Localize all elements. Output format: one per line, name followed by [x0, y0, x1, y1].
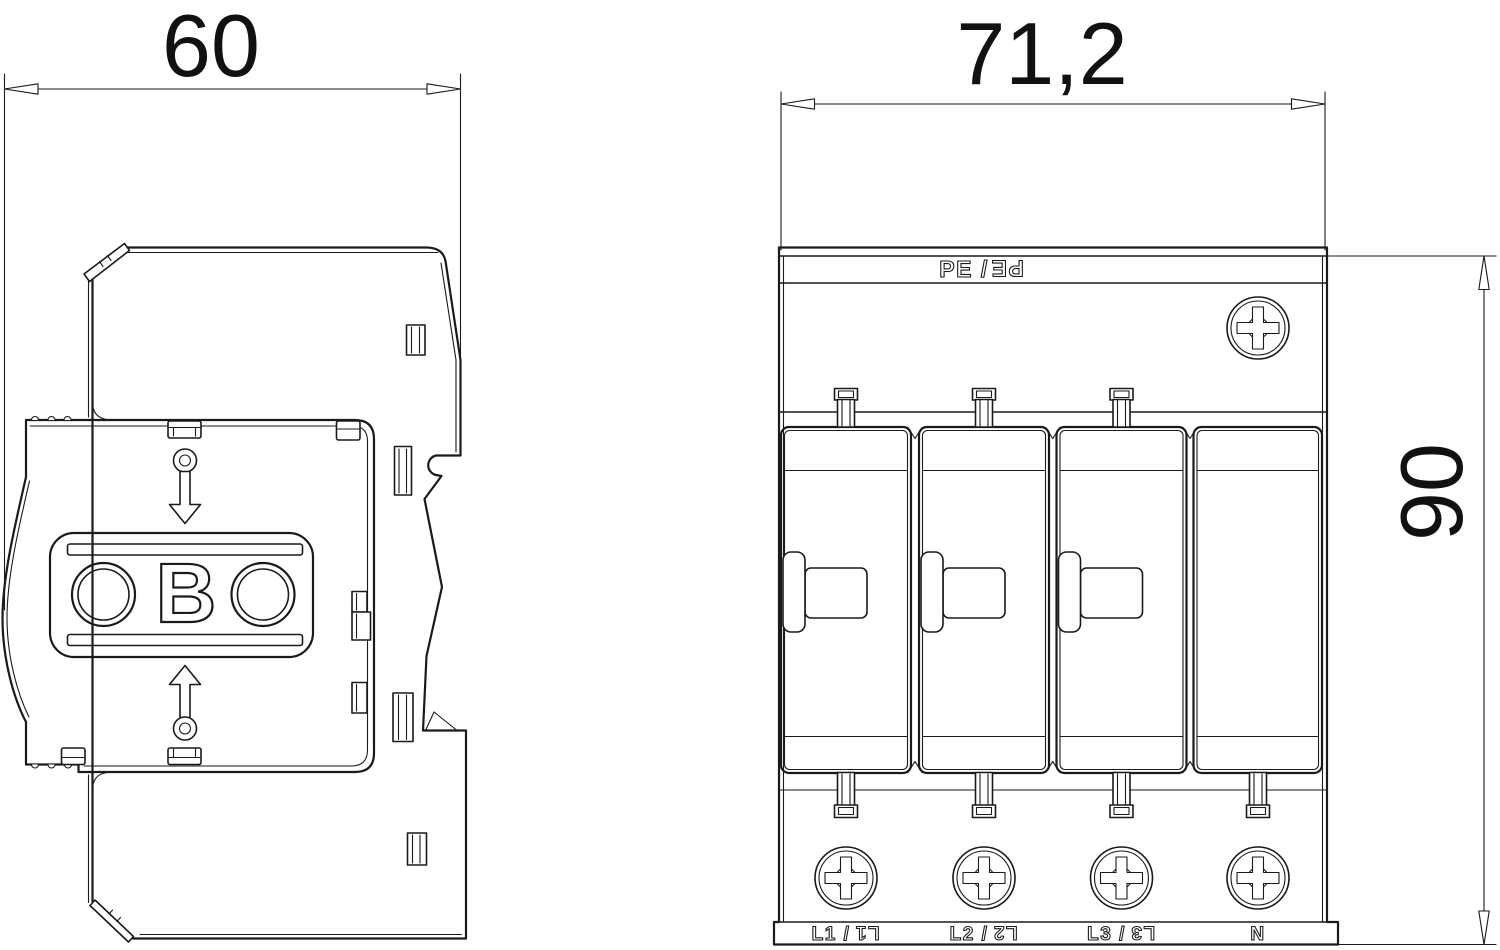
terminal-label-l3: L3 / L3 — [1087, 921, 1155, 945]
pe-label: PE / PE — [939, 255, 1024, 282]
arrowhead-up-icon — [1479, 256, 1489, 290]
dimension-value: 60 — [162, 0, 260, 95]
svg-text:L2: L2 — [992, 921, 1017, 942]
top-snap-clip — [84, 244, 130, 282]
phillips-screw-icon — [815, 847, 877, 909]
pe-label-rotated: PE — [990, 255, 1024, 281]
module-l1 — [781, 427, 911, 773]
plug-tab-icon — [835, 389, 858, 428]
terminal-label-l1: L1 / L1 — [812, 921, 880, 945]
housing-lug — [393, 693, 413, 742]
bottom-snap-clip — [90, 900, 134, 942]
arrowhead-left-icon — [781, 99, 815, 109]
plug-tab-icon — [1247, 773, 1270, 818]
module-l2 — [919, 427, 1049, 773]
logo-o-left-inner — [78, 569, 129, 620]
svg-text:N: N — [1250, 924, 1265, 945]
dimension-value: 71,2 — [956, 4, 1127, 103]
arrow-up-icon — [170, 666, 201, 718]
arrowhead-down-icon — [1479, 911, 1489, 945]
module-l3 — [1057, 427, 1187, 773]
phillips-screw-icon — [1091, 847, 1153, 909]
dimension-90: 90 — [1327, 256, 1496, 945]
phillips-screw-icon — [1227, 297, 1289, 359]
fillet-line — [93, 402, 108, 790]
technical-drawing-page: 60 71,2 90 — [0, 0, 1500, 950]
svg-text:L2 /: L2 / — [950, 924, 989, 945]
dimension-71-2: 71,2 — [781, 4, 1325, 250]
body-clip — [168, 421, 201, 438]
phillips-screw-icon — [1227, 847, 1289, 909]
step-wedge-line — [426, 712, 457, 731]
svg-text:L3: L3 — [1130, 921, 1155, 942]
surge-protector-drawing: 60 71,2 90 — [0, 0, 1500, 950]
protection-modules — [781, 427, 1322, 773]
plug-tab-icon — [1110, 389, 1133, 428]
arrowhead-right-icon — [1292, 99, 1326, 109]
body-clip — [62, 748, 86, 765]
arrow-down-icon — [170, 472, 201, 524]
logo-o-right-inner — [238, 569, 289, 620]
edge-bumps — [32, 417, 72, 768]
body-clip — [337, 421, 361, 440]
housing-lug — [395, 447, 412, 496]
front-view: PE / PE — [774, 248, 1338, 946]
dimension-value: 90 — [1382, 443, 1481, 541]
logo-o-right — [232, 563, 295, 626]
pe-label-normal: PE / — [939, 256, 988, 282]
dimension-60: 60 — [5, 0, 461, 610]
detail-line — [441, 263, 456, 452]
logo-o-left — [72, 563, 135, 626]
body-clip — [168, 748, 201, 765]
arrowhead-left-icon — [5, 84, 39, 94]
housing-lug — [407, 325, 426, 355]
logo-letter-b: B — [156, 546, 217, 640]
arrowhead-right-icon — [427, 84, 461, 94]
terminal-labels: L1 / L1 L2 / L2 L3 / L3 N — [812, 921, 1266, 945]
phillips-screw-icon — [953, 847, 1015, 909]
svg-text:L1: L1 — [854, 921, 879, 942]
terminal-label-n: N — [1250, 924, 1265, 945]
install-arrow-down — [170, 449, 201, 524]
plug-tab-icon — [835, 773, 858, 818]
obo-logo: B — [50, 533, 313, 657]
plug-tab-icon — [973, 389, 996, 428]
plug-tab-icon — [1110, 773, 1133, 818]
terminal-label-l2: L2 / L2 — [950, 921, 1018, 945]
module-n — [1194, 427, 1323, 773]
svg-text:L1 /: L1 / — [812, 924, 851, 945]
din-rail-housing — [84, 244, 466, 943]
svg-text:L3 /: L3 / — [1087, 924, 1126, 945]
side-view: B — [3, 244, 467, 943]
housing-lug — [408, 833, 427, 865]
plug-tab-icon — [973, 773, 996, 818]
install-arrow-up — [170, 666, 201, 741]
